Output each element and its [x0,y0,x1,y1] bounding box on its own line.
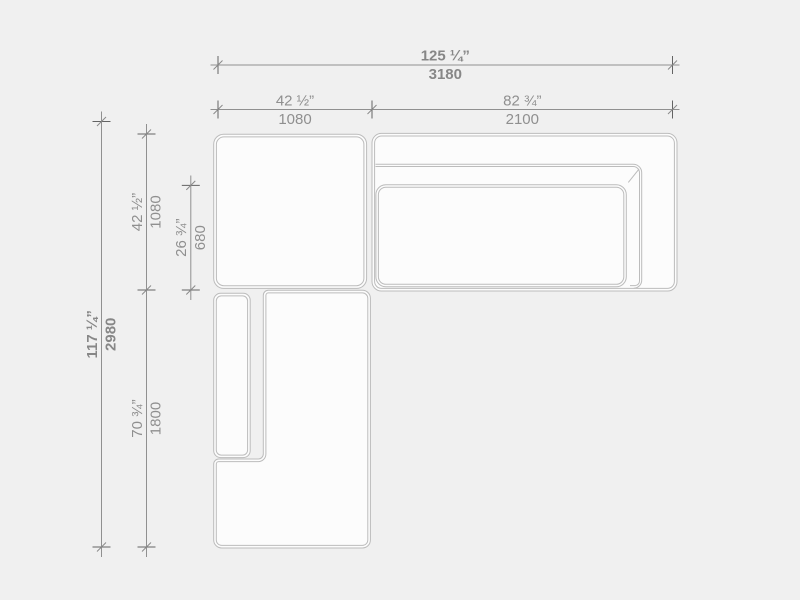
svg-text:680: 680 [192,225,209,250]
svg-text:70 ¾”: 70 ¾” [129,399,146,437]
svg-text:1800: 1800 [148,402,165,435]
svg-text:2980: 2980 [103,318,120,351]
svg-text:42 ½”: 42 ½” [129,193,146,231]
svg-text:82 ¾”: 82 ¾” [503,92,541,109]
svg-text:26 ¾”: 26 ¾” [173,219,190,257]
svg-text:42 ½”: 42 ½” [276,92,314,109]
svg-text:117 ¼”: 117 ¼” [84,310,101,358]
svg-text:2100: 2100 [506,111,539,128]
svg-text:1080: 1080 [148,195,165,228]
svg-text:1080: 1080 [278,111,311,128]
svg-text:125 ¼”: 125 ¼” [421,47,470,64]
svg-text:3180: 3180 [429,66,462,83]
